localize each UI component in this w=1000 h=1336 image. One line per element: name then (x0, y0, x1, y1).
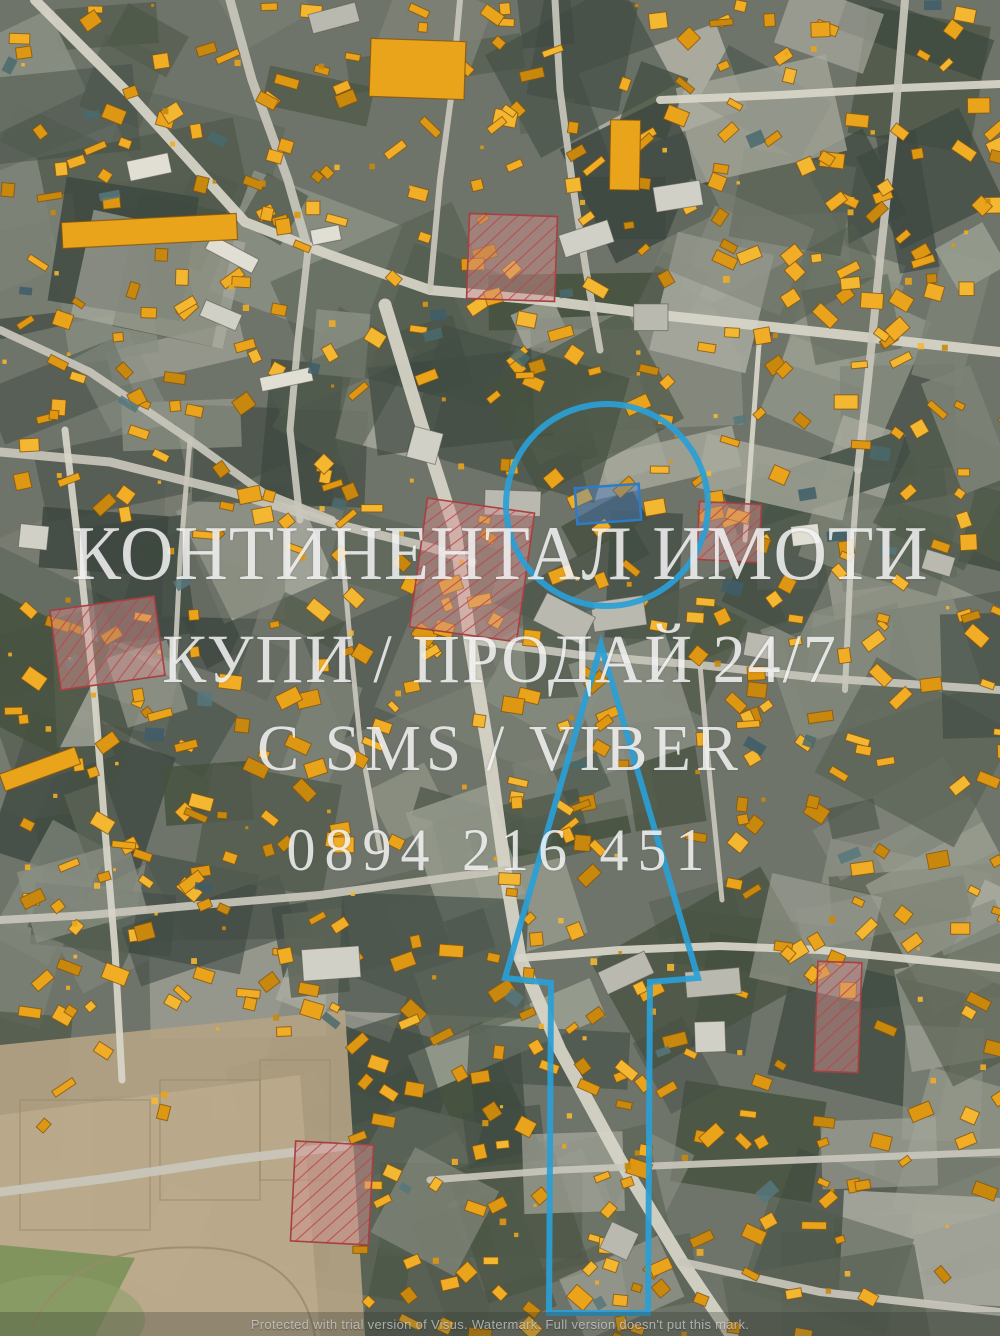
watermark-text: Protected with trial version of Visus. W… (251, 1317, 749, 1332)
watermark-bar: Protected with trial version of Visus. W… (0, 1312, 1000, 1336)
highlighted-parcel (575, 484, 641, 524)
satellite-map (0, 0, 1000, 1336)
real-estate-map-ad: КОНТИНЕНТАЛ ИМОТИ КУПИ / ПРОДАЙ 24/7 С S… (0, 0, 1000, 1336)
